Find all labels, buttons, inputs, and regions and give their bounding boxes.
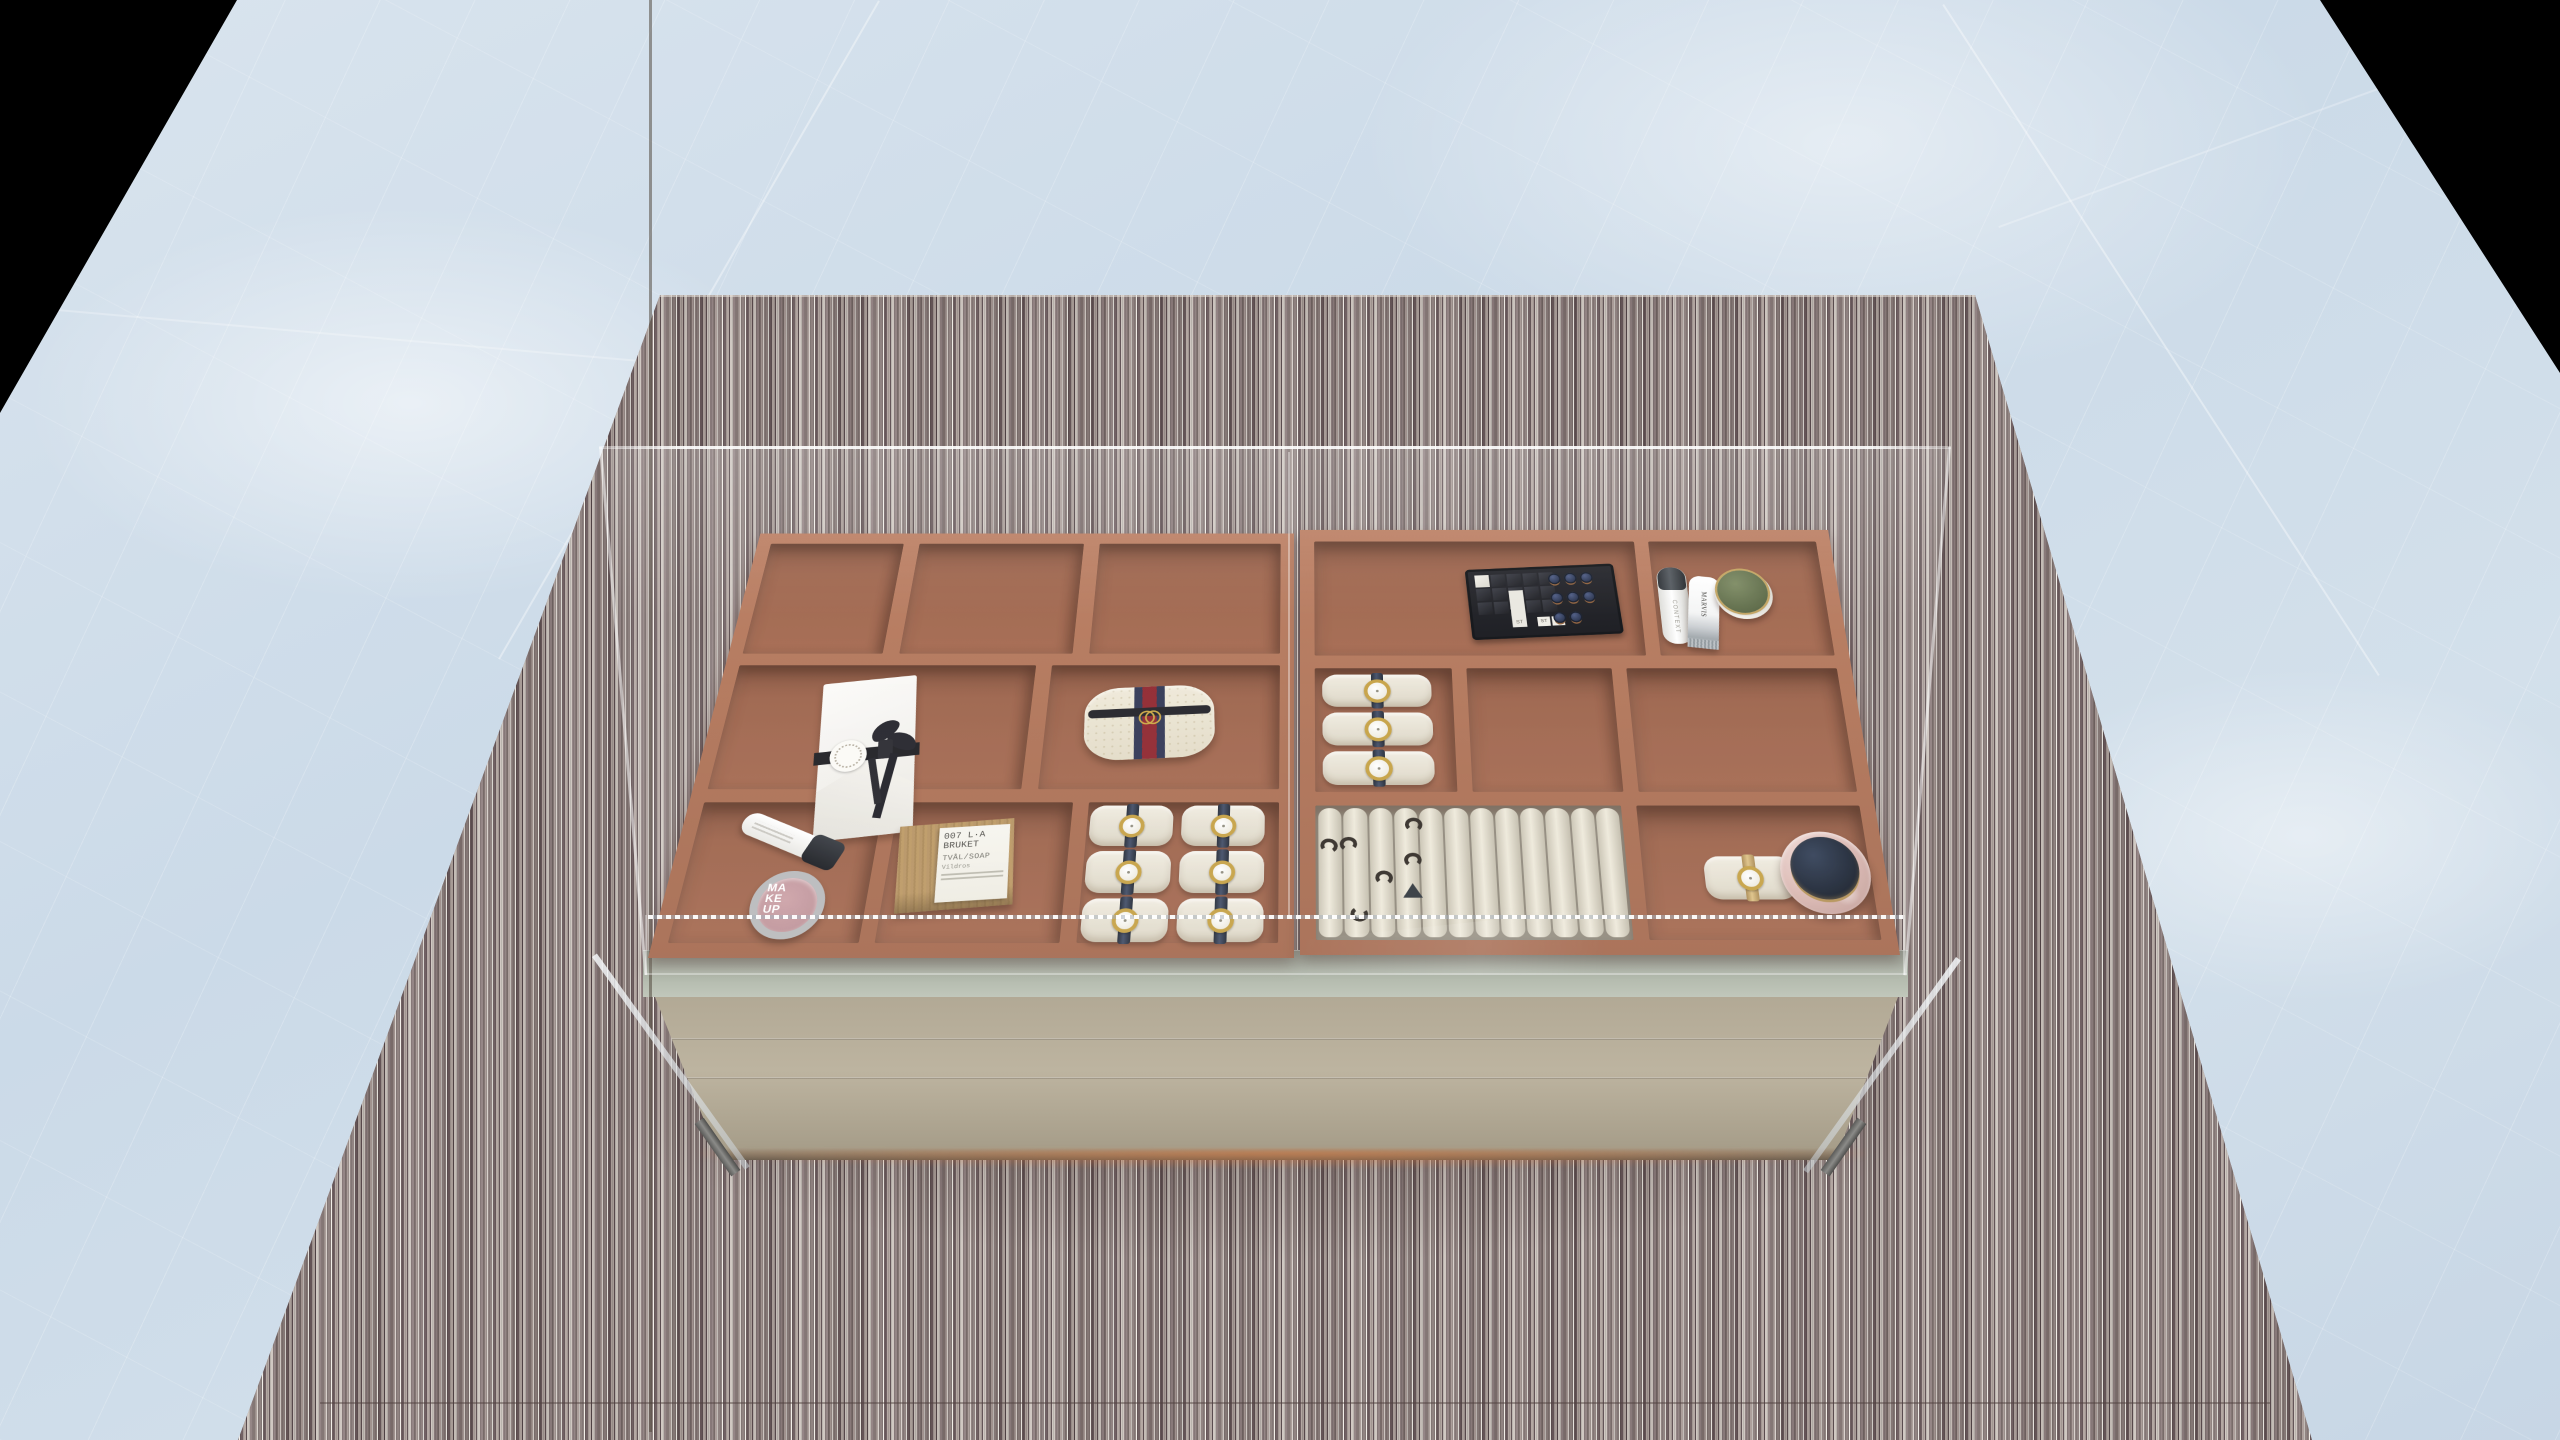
watch-pillow[interactable] xyxy=(1322,713,1433,746)
watch-pillow[interactable] xyxy=(1180,806,1264,846)
watch-pillow[interactable] xyxy=(1088,806,1174,846)
soap-box-label: 007 L·A BRUKET TVÅL/SOAP Vildros xyxy=(934,824,1010,903)
gg-logo-icon xyxy=(1139,710,1161,725)
compartment-empty[interactable] xyxy=(1466,668,1623,792)
lipstick-tube-grid xyxy=(1547,571,1614,628)
compartment-empty[interactable] xyxy=(1089,544,1281,654)
jewelry-tray-left[interactable]: MA KE UP 007 L·A BRUKET TVÅL/SOAP Vildro… xyxy=(648,533,1294,958)
drawer-unit[interactable] xyxy=(640,997,1905,1160)
watch-pillow-stack xyxy=(1322,675,1437,785)
gift-envelope[interactable] xyxy=(813,675,917,842)
drawer-seam xyxy=(652,1038,1893,1040)
designer-pouch[interactable] xyxy=(1083,684,1215,762)
glass-edge-front xyxy=(648,915,1903,919)
floor-tile-seam xyxy=(1998,14,2560,228)
makeup-jar-label: MA KE UP xyxy=(761,882,787,915)
glass-center-seam xyxy=(1288,452,1290,916)
watch-pillow[interactable] xyxy=(1079,898,1169,942)
under-cabinet-glow xyxy=(700,1150,1865,1168)
compartment-empty[interactable] xyxy=(899,544,1084,654)
watch-pillow[interactable] xyxy=(1323,751,1436,785)
watch-face xyxy=(1735,866,1765,890)
glass-base-line xyxy=(645,973,1907,975)
triangle-ring[interactable] xyxy=(1403,883,1423,897)
watch-face xyxy=(1364,717,1392,741)
watch-pillow[interactable] xyxy=(1322,675,1432,707)
glass-corner-right xyxy=(1903,915,1905,975)
watch-face xyxy=(1210,814,1236,837)
watch-pillow-group xyxy=(1079,806,1269,943)
compartment-empty[interactable] xyxy=(1626,668,1857,792)
ring-roll-tray[interactable] xyxy=(1315,806,1633,940)
glass-corner-left xyxy=(645,915,647,975)
ring[interactable] xyxy=(1403,852,1422,867)
watch-pillow[interactable] xyxy=(1176,898,1264,942)
watch-face xyxy=(1365,756,1393,780)
drawer-seam xyxy=(652,1077,1893,1079)
watch-face xyxy=(1363,679,1390,702)
watch-face xyxy=(1206,908,1233,933)
lipstick-organizer[interactable]: ST ST ST xyxy=(1465,564,1624,641)
rug-edge xyxy=(655,295,1977,297)
floor-tile-seam xyxy=(0,299,699,367)
glass-edge-top xyxy=(599,446,1951,449)
watch-pillow[interactable] xyxy=(1178,851,1264,893)
ring[interactable] xyxy=(1405,817,1423,832)
watch-face xyxy=(1208,860,1235,884)
soap-box[interactable]: 007 L·A BRUKET TVÅL/SOAP Vildros xyxy=(894,818,1014,914)
compartment-empty[interactable] xyxy=(743,544,904,654)
jewelry-tray-right[interactable]: ST ST ST CONTEXT MARVIS xyxy=(1300,530,1900,955)
watch-pillow[interactable] xyxy=(1084,851,1172,893)
marble-dish-lid xyxy=(1786,837,1864,900)
render-viewport: MA KE UP 007 L·A BRUKET TVÅL/SOAP Vildro… xyxy=(0,0,2560,1440)
bottle-cap xyxy=(1656,567,1686,590)
watch-face xyxy=(1114,860,1142,884)
cabinet-center-seam xyxy=(649,0,652,1432)
watch-face xyxy=(1118,814,1145,837)
lipstick-tag: ST xyxy=(1537,616,1551,626)
watch-face xyxy=(1110,908,1138,933)
rug-seam xyxy=(320,1402,2270,1404)
